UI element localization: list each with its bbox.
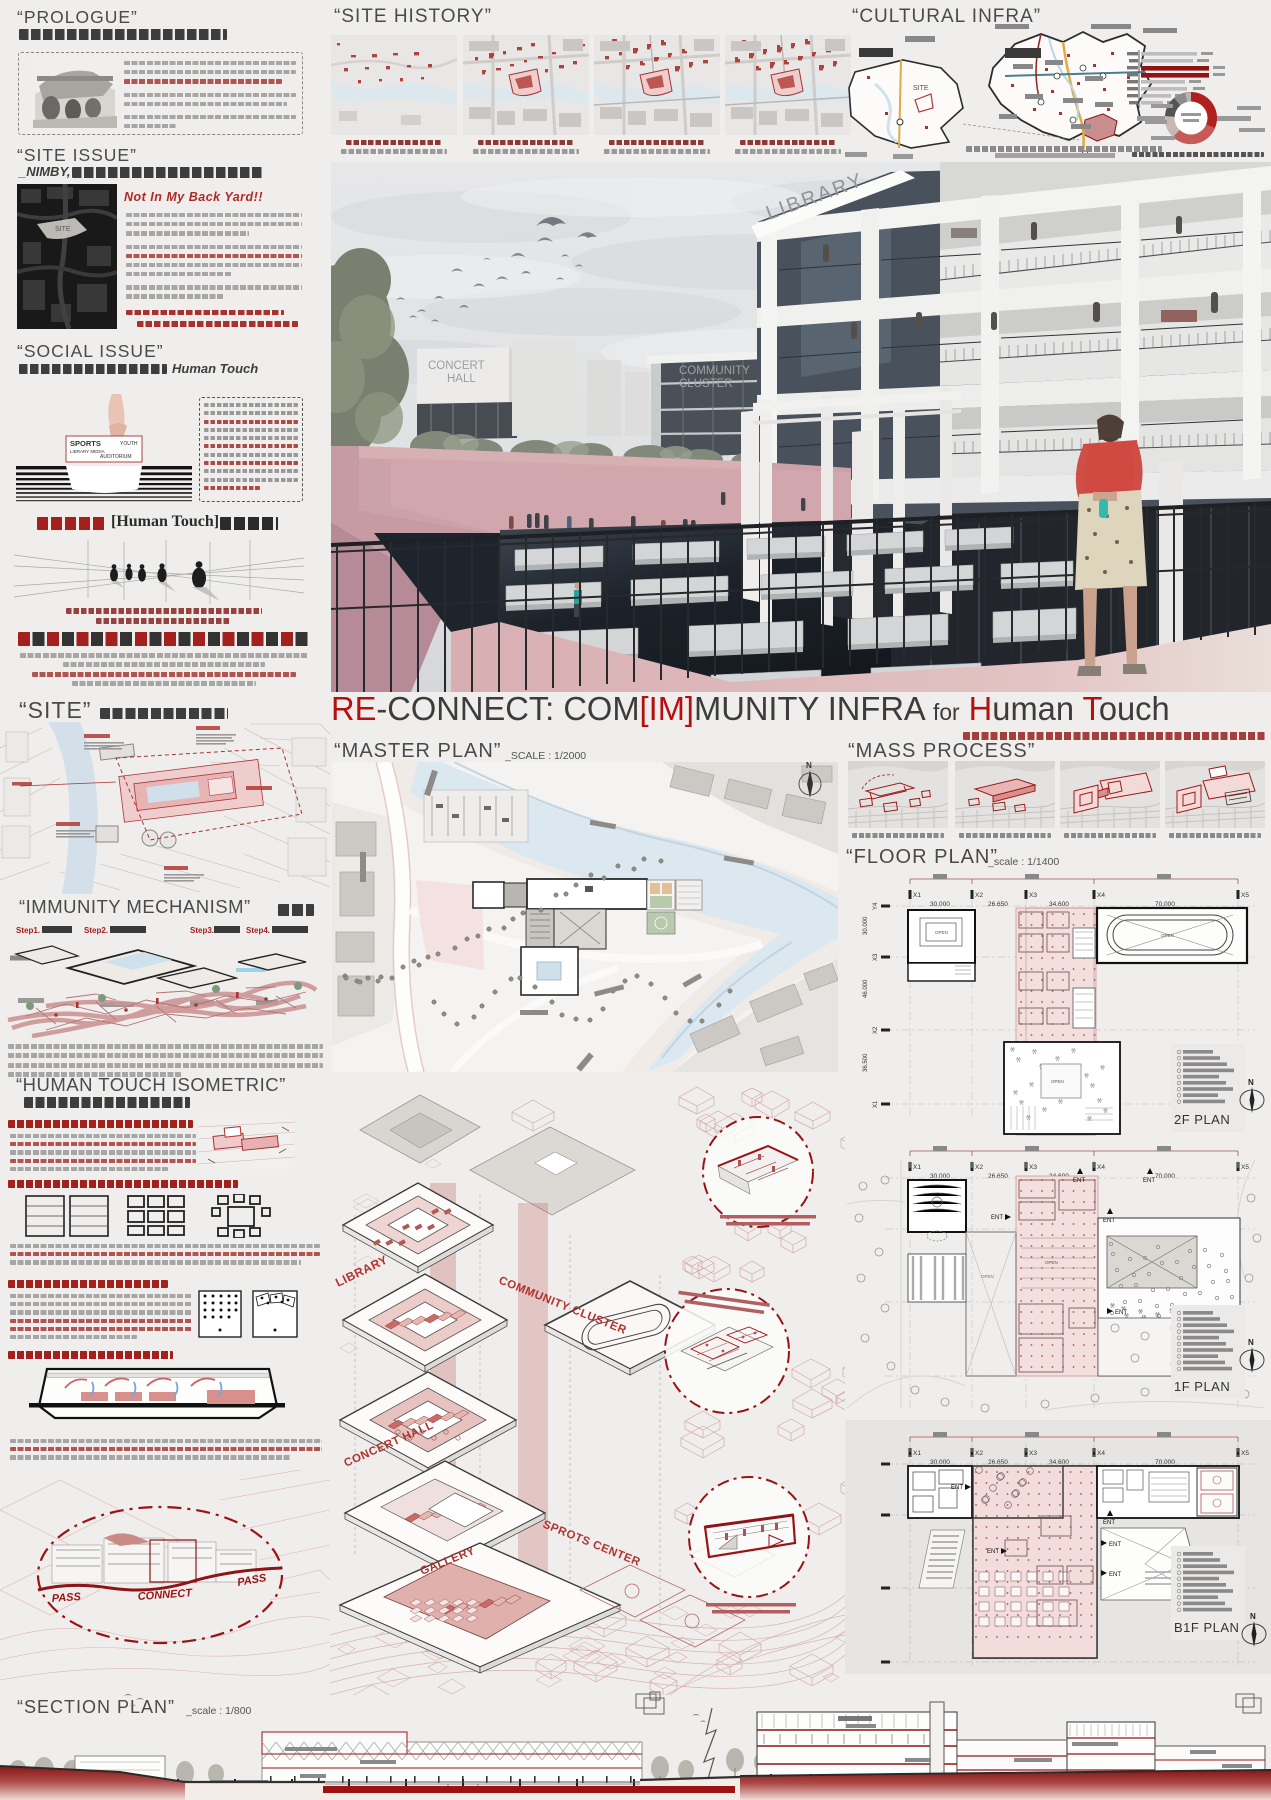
svg-text:N: N	[1248, 1078, 1254, 1087]
svg-text:COMMUNITY: COMMUNITY	[679, 365, 750, 377]
svg-text:ENT: ENT	[987, 1549, 999, 1555]
svg-text:Step4.: Step4.	[246, 926, 270, 935]
svg-text:OPEN: OPEN	[1161, 933, 1174, 938]
svg-text:ENT: ENT	[1109, 1572, 1121, 1578]
svg-text:B1F PLAN: B1F PLAN	[1174, 1620, 1239, 1635]
svg-text:OPEN: OPEN	[1051, 1079, 1064, 1084]
svg-text:X2: X2	[975, 892, 983, 899]
svg-text:Step1.: Step1.	[16, 926, 40, 935]
svg-text:N: N	[806, 762, 812, 770]
svg-text:26.650: 26.650	[988, 1459, 1008, 1466]
svg-text:Step2.: Step2.	[84, 926, 108, 935]
svg-text:36.500: 36.500	[863, 1053, 869, 1072]
svg-text:X4: X4	[1097, 892, 1105, 899]
svg-text:26.650: 26.650	[988, 901, 1008, 908]
svg-text:34.600: 34.600	[1049, 901, 1069, 908]
svg-text:30.000: 30.000	[930, 1459, 950, 1466]
svg-text:Y4: Y4	[873, 902, 879, 910]
svg-text:X1: X1	[913, 1450, 921, 1457]
svg-text:ENT: ENT	[991, 1215, 1003, 1221]
svg-text:ENT: ENT	[1073, 1178, 1085, 1184]
svg-text:ENT: ENT	[1115, 1310, 1127, 1316]
svg-text:34.600: 34.600	[1049, 1459, 1069, 1466]
svg-text:ENT: ENT	[1103, 1218, 1115, 1224]
svg-text:Step3.: Step3.	[190, 926, 214, 935]
svg-text:70.000: 70.000	[1155, 1459, 1175, 1466]
svg-text:X3: X3	[1029, 1450, 1037, 1457]
svg-text:30.000: 30.000	[930, 901, 950, 908]
svg-text:2F PLAN: 2F PLAN	[1174, 1112, 1230, 1127]
svg-text:LIBRARY: LIBRARY	[333, 1252, 390, 1289]
svg-text:CONCERT: CONCERT	[428, 360, 485, 372]
svg-text:ENT: ENT	[1109, 1542, 1121, 1548]
svg-text:X5: X5	[1241, 892, 1249, 899]
svg-text:N: N	[1248, 1338, 1254, 1347]
svg-text:1F PLAN: 1F PLAN	[1174, 1379, 1230, 1394]
svg-text:ENT: ENT	[1103, 1520, 1115, 1526]
svg-text:X5: X5	[1241, 1450, 1249, 1457]
svg-text:OPEN: OPEN	[981, 1274, 994, 1279]
svg-text:SITE: SITE	[913, 85, 929, 92]
svg-text:46.000: 46.000	[863, 979, 869, 998]
svg-text:X2: X2	[873, 1026, 879, 1034]
svg-text:PASS: PASS	[51, 1591, 82, 1605]
svg-text:OPEN: OPEN	[935, 930, 948, 935]
svg-text:SPORTS: SPORTS	[70, 439, 101, 448]
svg-text:SITE: SITE	[55, 226, 71, 233]
svg-text:YOUTH: YOUTH	[120, 441, 138, 447]
svg-text:OPEN: OPEN	[1045, 1260, 1058, 1265]
svg-text:X2: X2	[975, 1450, 983, 1457]
svg-text:N: N	[1250, 1612, 1256, 1621]
svg-text:CLUSTER: CLUSTER	[679, 378, 733, 390]
svg-text:X3: X3	[873, 953, 879, 961]
svg-text:X1: X1	[913, 892, 921, 899]
svg-text:AUDITORIUM: AUDITORIUM	[100, 454, 132, 460]
svg-text:X3: X3	[1029, 892, 1037, 899]
svg-text:X1: X1	[873, 1100, 879, 1108]
svg-text:ENT: ENT	[1143, 1178, 1155, 1184]
svg-text:CONNECT: CONNECT	[137, 1587, 193, 1603]
svg-text:X4: X4	[1097, 1450, 1105, 1457]
svg-text:SPROTS CENTER: SPROTS CENTER	[541, 1519, 642, 1569]
svg-text:ENT: ENT	[951, 1485, 963, 1491]
svg-text:30.000: 30.000	[863, 916, 869, 935]
svg-text:HALL: HALL	[447, 373, 476, 385]
